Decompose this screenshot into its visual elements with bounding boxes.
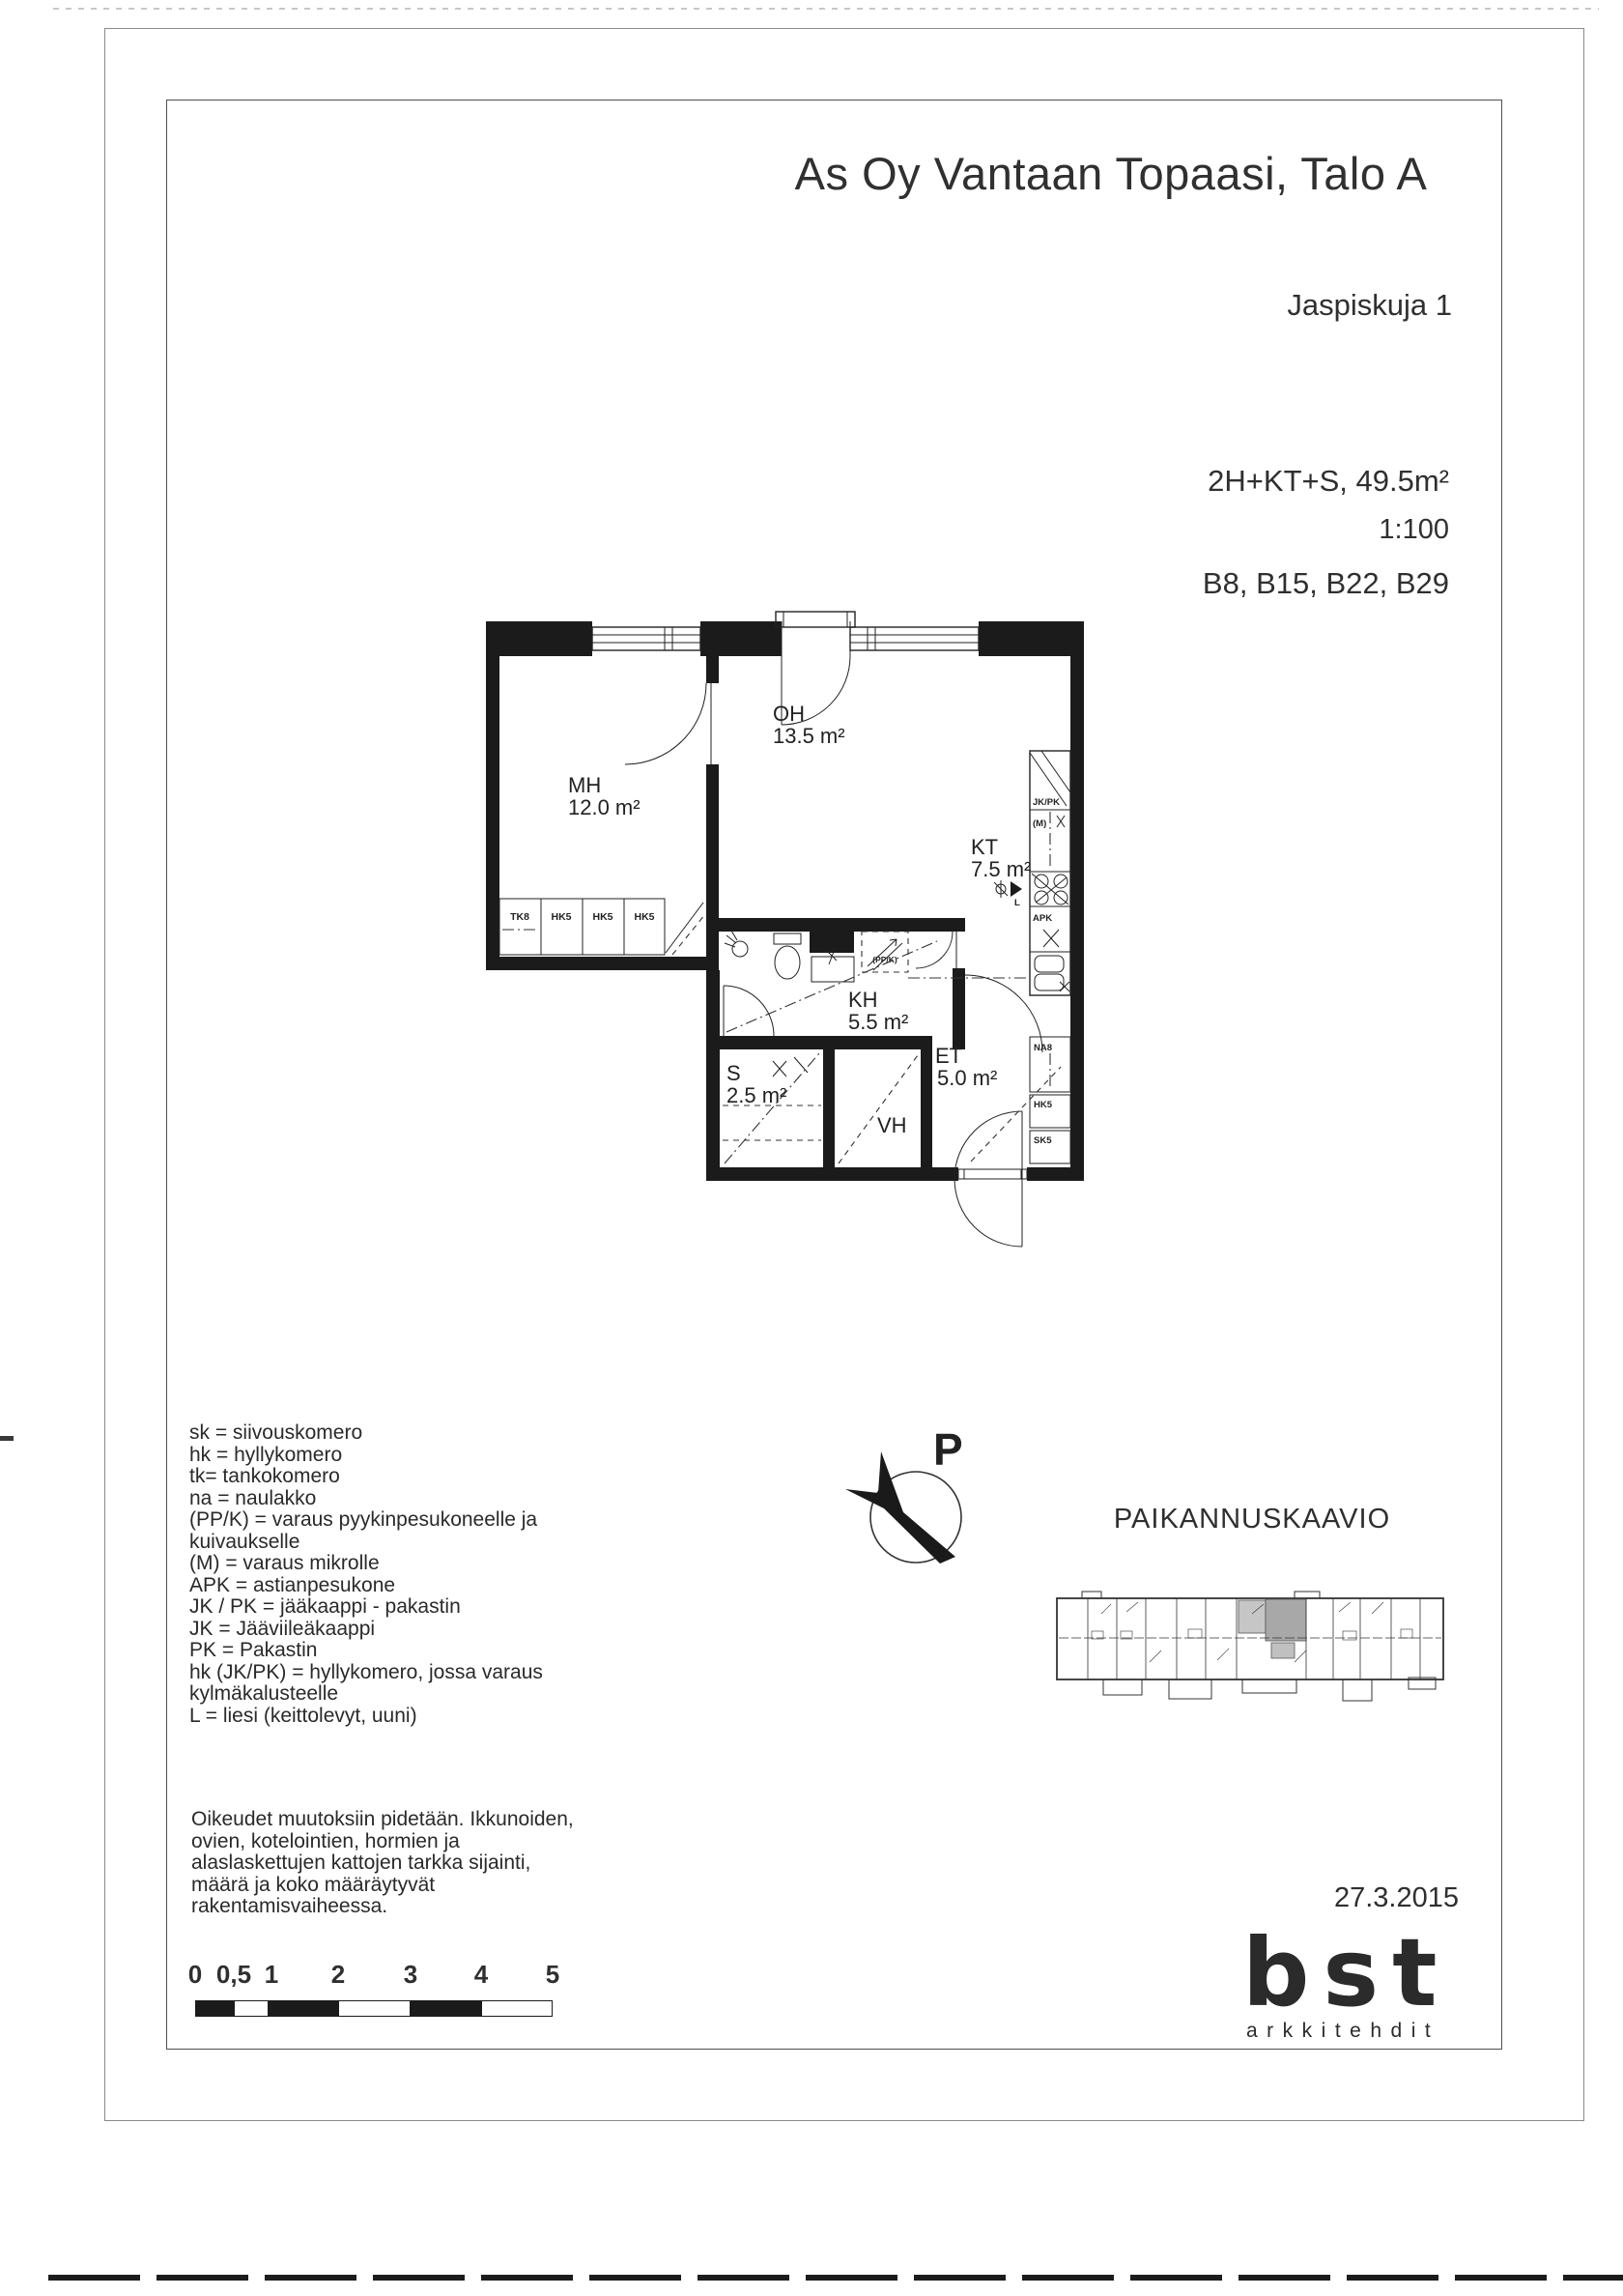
scan-artifact-bottom [48, 2275, 1623, 2281]
legend-line: (M) = varaus mikrolle [189, 1553, 543, 1575]
page-title: As Oy Vantaan Topaasi, Talo A [676, 147, 1546, 200]
scale-segment [269, 2000, 338, 2017]
scale-segment [411, 2000, 481, 2017]
legend-line: kylmäkalusteelle [189, 1683, 543, 1706]
scale-segment [481, 2000, 553, 2017]
scanned-floorplan-page: As Oy Vantaan Topaasi, Talo A Jaspiskuja… [0, 0, 1623, 2296]
scale-tick-label: 0 [188, 1960, 202, 1990]
fixture-label-m: (M) [1033, 818, 1046, 829]
closet-label: HK5 [1034, 1100, 1053, 1110]
disclaimer-line: alaslaskettujen kattojen tarkka sijainti… [191, 1852, 574, 1875]
scale-tick-label: 1 [265, 1960, 278, 1990]
closet-label: TK8 [510, 911, 529, 923]
closet-label: HK5 [592, 911, 612, 923]
door-arc-kh [916, 932, 956, 968]
fixture-label-jkpk: JK/PK [1033, 797, 1060, 808]
disclaimer-line: ovien, kotelointien, hormien ja [191, 1831, 574, 1853]
apartment-units: B8, B15, B22, B29 [966, 566, 1449, 601]
legend-line: hk = hyllykomero [189, 1445, 543, 1467]
toilet-icon [774, 933, 801, 979]
room-area-kh: 5.5 m² [848, 1010, 908, 1034]
scan-artifact-top [53, 8, 1599, 10]
room-label-et: ET [935, 1044, 962, 1068]
fixture-label-ppk: (PP/K) [872, 955, 897, 964]
legend-line: na = naulakko [189, 1488, 543, 1510]
legend-line: APK = astianpesukone [189, 1575, 543, 1597]
legend-line: tk= tankokomero [189, 1466, 543, 1488]
shower-icon [725, 931, 748, 957]
room-label-kt: KT [971, 835, 998, 859]
window-icon [592, 627, 700, 650]
legend-line: kuivaukselle [189, 1532, 543, 1554]
north-arrow: P [831, 1411, 985, 1575]
scale-segment [195, 2000, 234, 2017]
highlighted-unit [1239, 1599, 1306, 1658]
scale-tick-label: 4 [474, 1960, 488, 1990]
drawing-scale: 1:100 [966, 514, 1449, 546]
location-diagram [1053, 1585, 1451, 1710]
scale-tick-label: 0,5 [216, 1960, 251, 1990]
room-area-mh: 12.0 m² [568, 795, 641, 819]
scale-tick-label: 3 [404, 1960, 417, 1990]
legend-line: hk (JK/PK) = hyllykomero, jossa varaus [189, 1662, 543, 1684]
room-label-mh: MH [568, 773, 601, 797]
stove-hood-icon [994, 880, 1022, 898]
scale-tick-label: 5 [546, 1960, 559, 1990]
disclaimer-line: rakentamisvaiheessa. [191, 1896, 574, 1918]
legend-line: PK = Pakastin [189, 1640, 543, 1662]
location-diagram-title: PAIKANNUSKAAVIO [1053, 1504, 1451, 1535]
legend-line: sk = siivouskomero [189, 1422, 543, 1445]
entry-door-icon [954, 1111, 1027, 1247]
door-arc-et [965, 975, 1042, 1052]
window-icon [850, 627, 979, 650]
floorplan-drawing: TK8 HK5 HK5 HK5 NA8 HK5 SK5 [483, 611, 1092, 1268]
room-area-s: 2.5 m² [726, 1083, 786, 1107]
scale-tick-label: 2 [331, 1960, 345, 1990]
room-area-et: 5.0 m² [937, 1066, 997, 1090]
legend-line: JK / PK = jääkaappi - pakastin [189, 1596, 543, 1619]
north-label: P [933, 1424, 963, 1475]
logo-name: bst [1242, 1931, 1494, 2016]
door-arc-mh [625, 683, 711, 764]
abbreviation-legend: sk = siivouskomero hk = hyllykomero tk= … [189, 1422, 543, 1727]
fixture-label-l: L [1014, 898, 1020, 908]
drawing-date: 27.3.2015 [1063, 1882, 1459, 1914]
disclaimer-line: Oikeudet muutoksiin pidetään. Ikkunoiden… [191, 1809, 574, 1831]
logo-tagline: arkkitehdit [1246, 2020, 1494, 2043]
legend-line: L = liesi (keittolevyt, uuni) [189, 1706, 543, 1728]
room-area-kt: 7.5 m² [971, 857, 1031, 881]
closet-label: HK5 [634, 911, 654, 923]
closet-label: NA8 [1034, 1043, 1052, 1053]
washer-reservation-icon: (PP/K) [862, 932, 908, 972]
room-label-s: S [726, 1061, 741, 1085]
disclaimer-line: määrä ja koko määräytyvät [191, 1875, 574, 1897]
address: Jaspiskuja 1 [966, 288, 1452, 323]
architect-logo: bst arkkitehdit [1242, 1931, 1494, 2043]
closet-row-mh: TK8 HK5 HK5 HK5 [499, 899, 705, 955]
room-label-oh: OH [773, 702, 805, 726]
legend-line: (PP/K) = varaus pyykinpesukoneelle ja [189, 1509, 543, 1532]
closet-label: HK5 [551, 911, 571, 923]
apartment-type: 2H+KT+S, 49.5m² [966, 464, 1449, 499]
scale-segment [338, 2000, 411, 2017]
room-label-vh: VH [877, 1113, 907, 1137]
scan-edge-mark [0, 1436, 14, 1441]
room-label-kh: KH [848, 988, 878, 1012]
door-arc-sauna [724, 986, 774, 1036]
room-area-oh: 13.5 m² [773, 724, 845, 748]
closet-column-et: NA8 HK5 SK5 [1030, 1037, 1070, 1163]
scale-segment [234, 2000, 269, 2017]
disclaimer: Oikeudet muutoksiin pidetään. Ikkunoiden… [191, 1809, 574, 1918]
legend-line: JK = Jääviileäkaappi [189, 1619, 543, 1641]
closet-label: SK5 [1034, 1135, 1052, 1146]
fixture-label-apk: APK [1033, 913, 1052, 924]
sink-icon [811, 949, 854, 982]
